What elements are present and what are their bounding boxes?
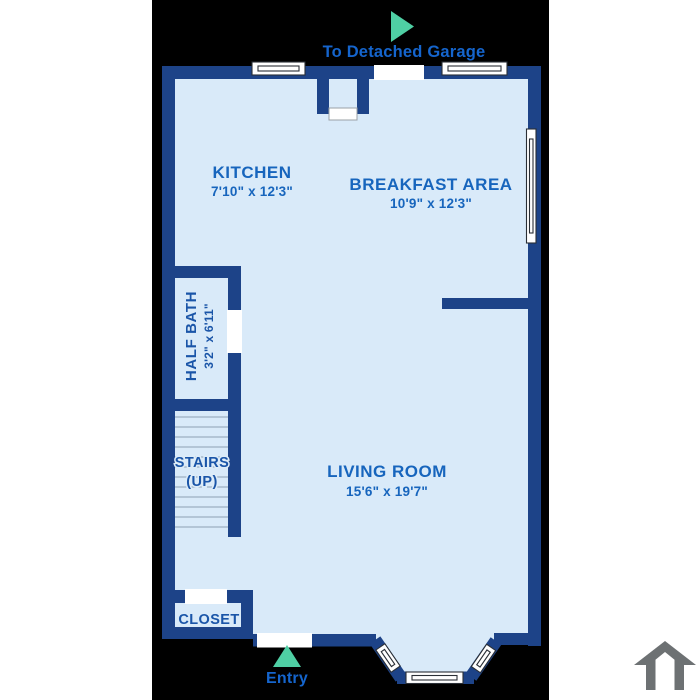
breakfast-window <box>442 62 507 75</box>
stairs-direction: (UP) <box>186 474 217 490</box>
right-wall-window <box>527 129 537 243</box>
niche-wall-left <box>317 79 329 114</box>
entry-label: Entry <box>266 670 308 687</box>
closet-label: CLOSET <box>178 612 239 628</box>
entry-door-opening <box>257 633 312 648</box>
breakfast-label: BREAKFAST AREA <box>349 175 512 194</box>
wall-bottom-closet <box>162 627 253 639</box>
living-room-label: LIVING ROOM <box>327 462 447 481</box>
kitchen-label: KITCHEN <box>212 163 291 182</box>
floor-plan-svg: To Detached Garage KITCHEN 7'10" x 12'3"… <box>0 0 700 700</box>
breakfast-dims: 10'9" x 12'3" <box>390 196 472 211</box>
kitchen-dims: 7'10" x 12'3" <box>211 184 293 199</box>
closet-wall-right <box>241 590 253 639</box>
halfbath-wall-bottom <box>162 399 241 411</box>
niche-sill <box>329 108 357 120</box>
wall-left <box>162 66 175 639</box>
living-room-dims: 15'6" x 19'7" <box>346 484 428 499</box>
bay-window-bottom <box>406 672 463 684</box>
house-icon <box>634 641 696 690</box>
stairs-label: STAIRS <box>175 455 230 471</box>
stairs-wall-right <box>228 411 241 537</box>
halfbath-label: HALF BATH <box>183 291 200 381</box>
garage-label: To Detached Garage <box>323 43 486 61</box>
halfbath-dims: 3'2" x 6'11" <box>202 303 216 369</box>
floor-plan-page: To Detached Garage KITCHEN 7'10" x 12'3"… <box>0 0 700 700</box>
halfbath-door-opening <box>227 310 242 353</box>
bay-wall-notch <box>494 633 541 645</box>
niche-wall-right <box>357 79 369 114</box>
breakfast-living-divider <box>442 298 528 309</box>
closet-door-opening <box>185 589 227 604</box>
garage-door-opening <box>374 65 424 80</box>
kitchen-window <box>252 62 305 75</box>
